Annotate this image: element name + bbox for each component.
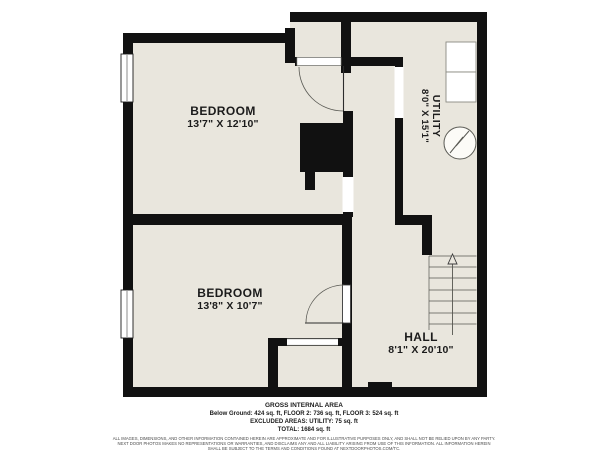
hall-entry-threshold: [368, 382, 392, 390]
room-dimensions: 13'8" X 10'7": [155, 300, 305, 313]
room-label-utility: UTILITY 8'0" X 15'1": [418, 56, 442, 176]
room-label-hall: HALL 8'1" X 20'10": [351, 331, 491, 357]
water-heater-icon: [444, 127, 476, 159]
area-summary: GROSS INTERNAL AREA Below Ground: 424 sq…: [0, 402, 608, 452]
floor-plan-drawing: [0, 0, 608, 456]
disclaimer: ALL IMAGES, DIMENSIONS, AND OTHER INFORM…: [0, 436, 608, 452]
room-dimensions: 13'7" X 12'10": [148, 118, 298, 131]
room-label-bedroom-1: BEDROOM 13'7" X 12'10": [148, 105, 298, 131]
room-name: BEDROOM: [148, 105, 298, 118]
room-name: BEDROOM: [155, 287, 305, 300]
closet-wide-opening: [287, 339, 338, 345]
appliance-icon: [446, 42, 476, 102]
floor-plan-page: BEDROOM 13'7" X 12'10" BEDROOM 13'8" X 1…: [0, 0, 608, 456]
room-name: HALL: [351, 331, 491, 344]
room-name: UTILITY: [430, 56, 442, 176]
closet-door-opening: [297, 58, 341, 66]
gross-internal-area-title: GROSS INTERNAL AREA: [0, 402, 608, 410]
total-area: TOTAL: 1684 sq. ft: [0, 426, 608, 434]
disclaimer-line: SHALL BE SUBJECT TO THE TERMS AND CONDIT…: [0, 446, 608, 451]
window-icon-bedroom2: [121, 290, 133, 338]
bedroom1-entry-opening: [343, 177, 354, 212]
room-dimensions: 8'1" X 20'10": [351, 344, 491, 357]
areas-by-floor: Below Ground: 424 sq. ft, FLOOR 2: 736 s…: [0, 410, 608, 418]
room-dimensions: 8'0" X 15'1": [418, 56, 430, 176]
room-label-bedroom-2: BEDROOM 13'8" X 10'7": [155, 287, 305, 313]
window-icon-bedroom1: [121, 54, 133, 102]
excluded-areas: EXCLUDED AREAS: UTILITY: 75 sq. ft: [0, 418, 608, 426]
utility-door-opening: [395, 67, 404, 118]
